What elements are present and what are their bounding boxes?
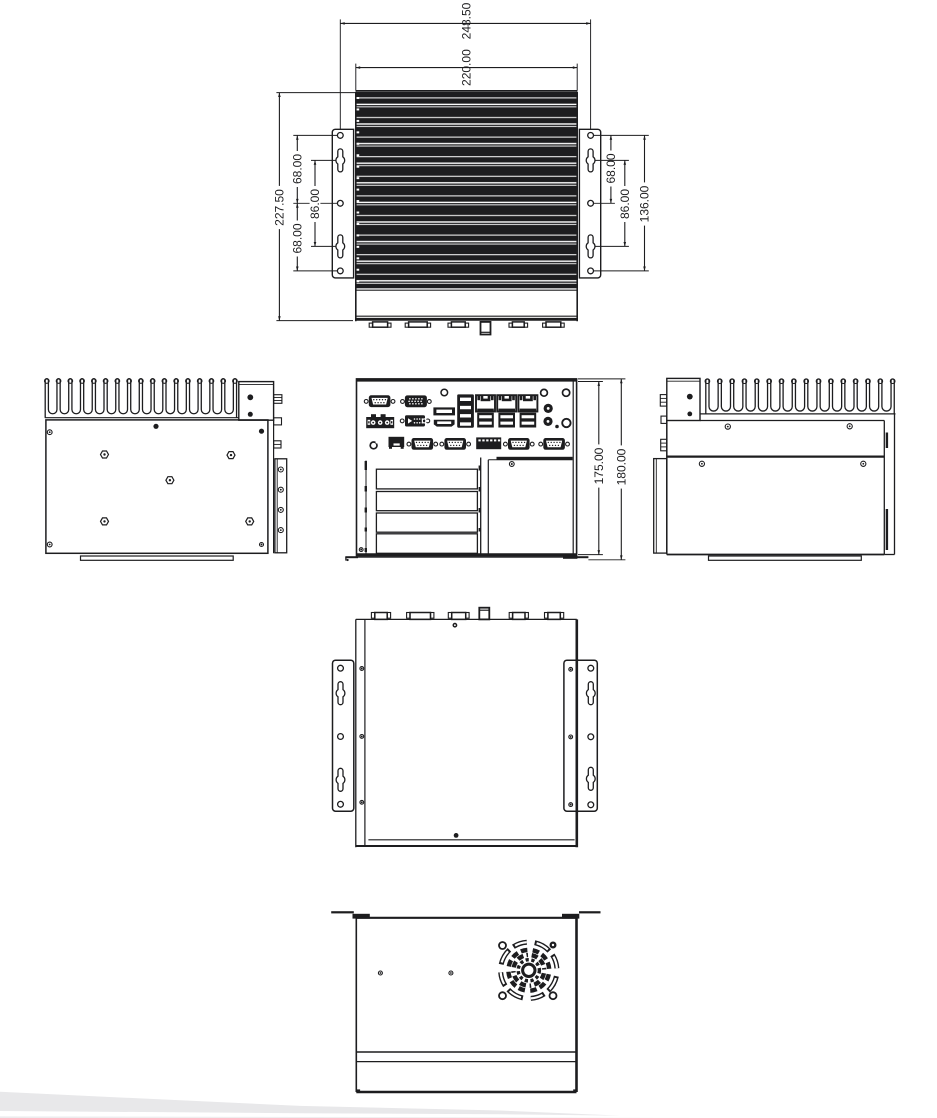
svg-text:68.00: 68.00 <box>604 153 618 183</box>
svg-text:68.00: 68.00 <box>290 154 304 184</box>
svg-text:180.00: 180.00 <box>614 448 628 485</box>
svg-text:248.50: 248.50 <box>460 2 474 39</box>
svg-text:136.00: 136.00 <box>638 185 652 222</box>
svg-text:86.00: 86.00 <box>308 189 322 219</box>
svg-text:68.00: 68.00 <box>290 223 304 253</box>
svg-text:227.50: 227.50 <box>272 189 286 226</box>
svg-text:86.00: 86.00 <box>618 189 632 219</box>
svg-text:175.00: 175.00 <box>592 447 606 484</box>
svg-text:220.00: 220.00 <box>460 49 474 86</box>
